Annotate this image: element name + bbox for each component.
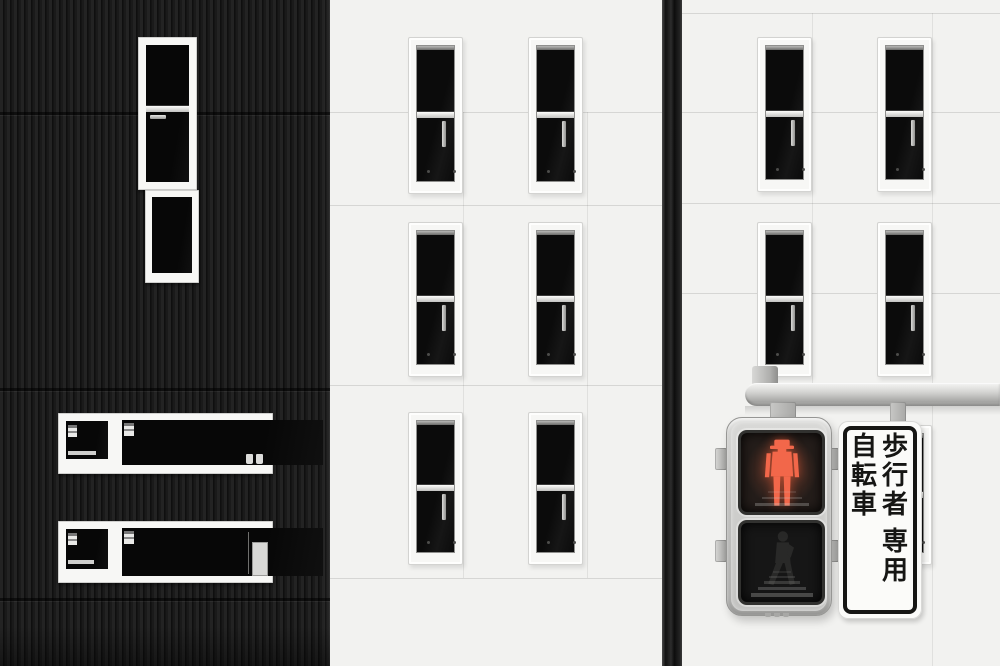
window-frame <box>757 222 812 377</box>
wall-seam <box>812 13 813 383</box>
wall-seam <box>682 293 1000 294</box>
white-cup <box>246 454 253 464</box>
wall-seam <box>463 112 464 578</box>
wall-seam <box>330 112 662 113</box>
sign-character: 専 <box>882 527 908 556</box>
white-shelf-item <box>68 560 94 564</box>
window-glass-small <box>66 421 108 459</box>
signal-bottom-fittings <box>765 613 771 617</box>
window-handle <box>911 120 915 146</box>
window-mullion <box>886 295 923 302</box>
window-glass <box>416 420 455 553</box>
window-glass <box>536 45 575 182</box>
white-building-middle <box>330 0 662 666</box>
black-wall-seam <box>0 388 330 391</box>
window-frame-line <box>248 532 249 574</box>
bottom-shadow <box>0 626 330 666</box>
crosswalk-stripe <box>764 581 800 584</box>
window-glass <box>146 45 189 182</box>
window-frame <box>408 37 463 194</box>
ribbon-window-frame <box>58 521 273 583</box>
window-top-rail <box>766 231 803 235</box>
window-mullion <box>417 484 454 491</box>
crosswalk-stripe <box>755 503 809 506</box>
window-mullion <box>537 111 574 118</box>
crosswalk-stripe <box>758 587 806 590</box>
window-top-rail <box>537 421 574 425</box>
crosswalk-stripe <box>751 593 813 597</box>
white-cup <box>256 454 263 464</box>
window-glass <box>765 230 804 365</box>
window-screws <box>896 168 899 171</box>
window-mullion <box>886 110 923 117</box>
sign-text-column-left: 自転車 <box>850 432 878 519</box>
window-glass <box>885 230 924 365</box>
window-frame <box>877 222 932 377</box>
window-handle <box>562 305 566 331</box>
window-label-sticker <box>68 425 77 437</box>
window-handle <box>442 121 446 147</box>
window-mullion <box>537 295 574 302</box>
wall-seam <box>682 203 1000 204</box>
sign-character: 転 <box>851 461 877 490</box>
wall-seam <box>330 385 662 386</box>
window-handle <box>442 494 446 520</box>
sign-character: 者 <box>882 490 908 519</box>
window-glass <box>416 45 455 182</box>
window-glass <box>765 45 804 180</box>
window-handle <box>791 120 795 146</box>
unlit-walk-lamp <box>738 520 825 605</box>
sign-character: 用 <box>882 556 908 585</box>
window-handle <box>150 115 166 119</box>
sign-character: 歩 <box>882 432 908 461</box>
regulatory-sign-pedestrian-bicycle-only: 歩行者専用 自転車 <box>838 421 922 619</box>
window-frame <box>528 412 583 565</box>
window-glass-long <box>122 528 323 576</box>
window-handle <box>562 494 566 520</box>
window-glass <box>536 230 575 365</box>
ribbon-window-frame <box>58 413 273 474</box>
window-screws <box>547 170 550 173</box>
window-top-rail <box>886 231 923 235</box>
wall-seam <box>330 205 662 206</box>
wall-seam <box>587 112 588 578</box>
window-glass <box>152 197 192 273</box>
window-frame <box>408 222 463 377</box>
window-mullion <box>766 295 803 302</box>
building-expansion-gap <box>662 0 682 666</box>
sign-character: 行 <box>882 461 908 490</box>
wall-corner-highlight <box>323 0 330 666</box>
window-mullion <box>417 295 454 302</box>
sign-character: 車 <box>851 490 877 519</box>
window-top-rail <box>537 46 574 50</box>
black-wall-seam <box>0 598 330 601</box>
window-top-rail <box>417 421 454 425</box>
window-frame <box>408 412 463 565</box>
photo-monochrome-facade-with-signal: 歩行者専用 自転車 <box>0 0 1000 666</box>
window-label-sticker <box>124 531 134 544</box>
window-frame <box>757 37 812 192</box>
window-glass-long <box>122 420 323 465</box>
window-label-sticker <box>68 533 77 545</box>
window-top-rail <box>886 46 923 50</box>
window-handle <box>911 305 915 331</box>
window-screws <box>896 353 899 356</box>
tall-window-lower-frame <box>145 190 199 283</box>
window-frame <box>877 37 932 192</box>
sign-text-column-right: 歩行者専用 <box>881 432 909 585</box>
window-screws <box>547 353 550 356</box>
red-stop-lamp <box>738 430 825 515</box>
window-mullion <box>417 111 454 118</box>
window-glass <box>416 230 455 365</box>
window-glass-small <box>66 529 108 569</box>
pedestrian-signal <box>726 417 832 616</box>
window-screws <box>776 353 779 356</box>
wall-seam <box>682 112 1000 113</box>
window-handle <box>562 121 566 147</box>
wall-seam <box>932 13 933 666</box>
window-screws <box>776 168 779 171</box>
window-mullion <box>146 105 189 112</box>
tall-window-upper-frame <box>138 37 197 190</box>
wall-seam <box>682 13 1000 14</box>
window-screws <box>547 541 550 544</box>
window-screws <box>427 541 430 544</box>
window-top-rail <box>417 46 454 50</box>
sign-character: 自 <box>851 432 877 461</box>
window-top-rail <box>537 231 574 235</box>
crosswalk-stripe <box>773 571 791 573</box>
wall-seam <box>330 578 662 579</box>
window-mullion <box>766 110 803 117</box>
window-screws <box>427 170 430 173</box>
crosswalk-stripe <box>769 576 795 578</box>
window-mullion <box>537 484 574 491</box>
window-label-sticker <box>124 423 134 436</box>
window-handle <box>791 305 795 331</box>
white-shelf-item <box>68 451 96 455</box>
window-screws <box>427 353 430 356</box>
white-door-panel <box>252 542 268 576</box>
crosswalk-stripe <box>762 497 802 499</box>
window-glass <box>536 420 575 553</box>
crosswalk-stripe <box>768 491 796 493</box>
window-top-rail <box>766 46 803 50</box>
window-top-rail <box>417 231 454 235</box>
window-frame <box>528 222 583 377</box>
window-frame <box>528 37 583 194</box>
window-handle <box>442 305 446 331</box>
window-glass <box>885 45 924 180</box>
